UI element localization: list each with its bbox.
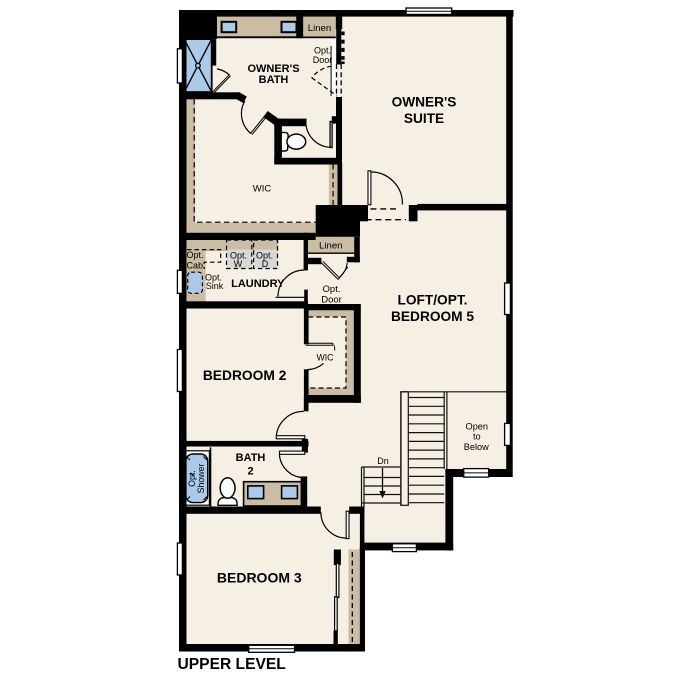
svg-text:BEDROOM 5: BEDROOM 5 [391,309,474,324]
svg-text:Shower: Shower [196,464,206,494]
svg-text:WIC: WIC [316,353,334,363]
svg-text:Linen: Linen [308,23,331,34]
svg-text:Door: Door [313,55,333,65]
svg-text:SUITE: SUITE [404,111,444,126]
svg-text:OWNER'S: OWNER'S [392,94,457,109]
svg-text:2: 2 [247,466,253,478]
svg-text:Opt.: Opt. [323,284,341,295]
svg-text:Linen: Linen [319,240,342,251]
svg-text:Open: Open [466,422,488,432]
svg-text:Opt.: Opt. [314,46,331,56]
svg-text:D: D [262,259,269,269]
svg-text:Dn: Dn [377,456,389,466]
svg-text:BEDROOM 3: BEDROOM 3 [217,570,302,586]
svg-text:BATH: BATH [259,74,289,86]
svg-text:W: W [234,259,243,269]
svg-text:Door: Door [321,294,342,305]
svg-text:BEDROOM 2: BEDROOM 2 [203,368,287,383]
svg-text:Sink: Sink [206,281,224,291]
svg-text:BATH: BATH [236,452,266,464]
svg-text:to: to [473,431,481,441]
svg-text:Cab: Cab [187,260,204,270]
svg-text:WIC: WIC [253,184,272,195]
svg-text:UPPER LEVEL: UPPER LEVEL [178,656,287,673]
svg-text:LAUNDRY: LAUNDRY [231,278,285,290]
svg-text:Opt.: Opt. [186,250,203,260]
svg-text:Below: Below [464,442,489,452]
svg-text:LOFT/OPT.: LOFT/OPT. [398,292,468,307]
